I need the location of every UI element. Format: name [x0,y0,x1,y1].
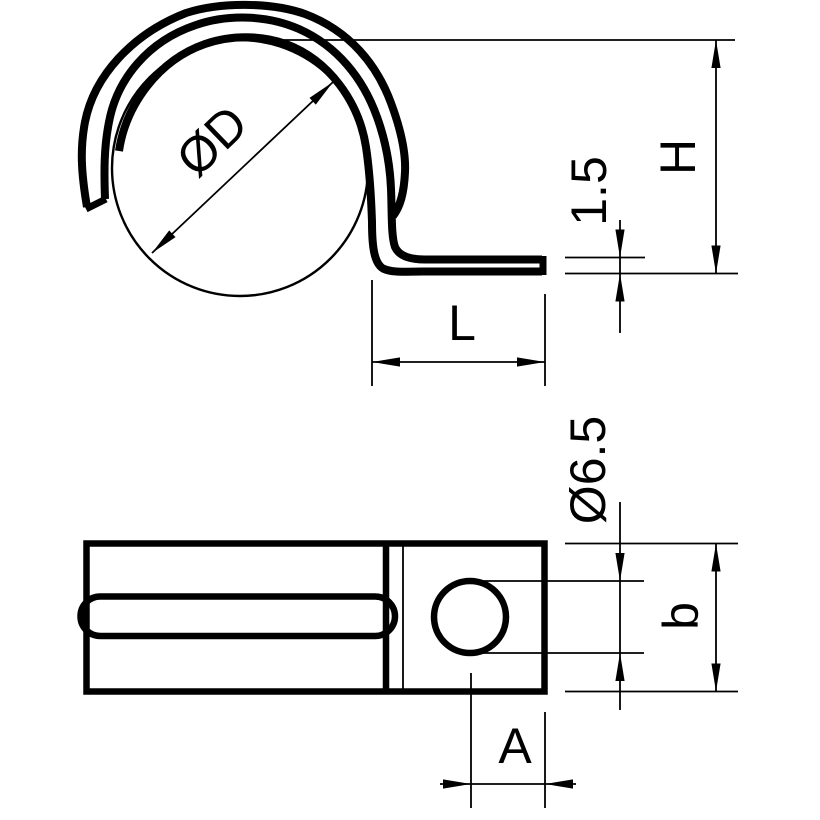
label-foot-length: L [448,295,476,351]
label-clip-width: b [653,602,709,630]
label-height: H [650,139,706,175]
label-hole-offset: A [498,718,532,774]
label-material-thickness: 1.5 [561,156,617,226]
label-hole-diameter: Ø6.5 [560,416,616,524]
technical-drawing-canvas: ØD H 1.5 [0,0,820,820]
technical-drawing-page: ØD H 1.5 [0,0,820,820]
